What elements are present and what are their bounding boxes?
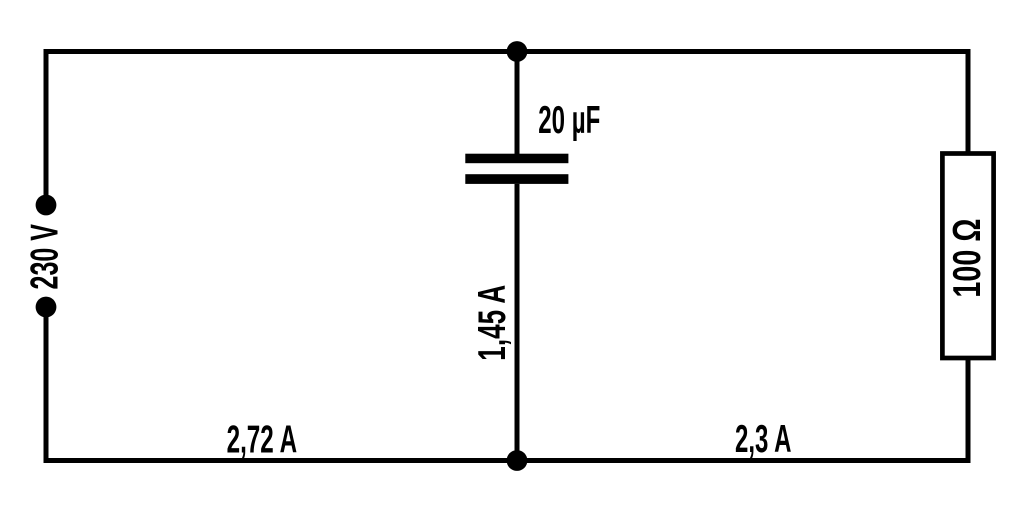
svg-text:230 V: 230 V [23,224,66,290]
svg-text:20 µF: 20 µF [538,99,600,142]
svg-text:100 Ω: 100 Ω [946,219,989,298]
svg-text:1,45 A: 1,45 A [471,285,514,361]
svg-text:2,72 A: 2,72 A [227,419,298,462]
svg-text:2,3 A: 2,3 A [735,418,792,461]
